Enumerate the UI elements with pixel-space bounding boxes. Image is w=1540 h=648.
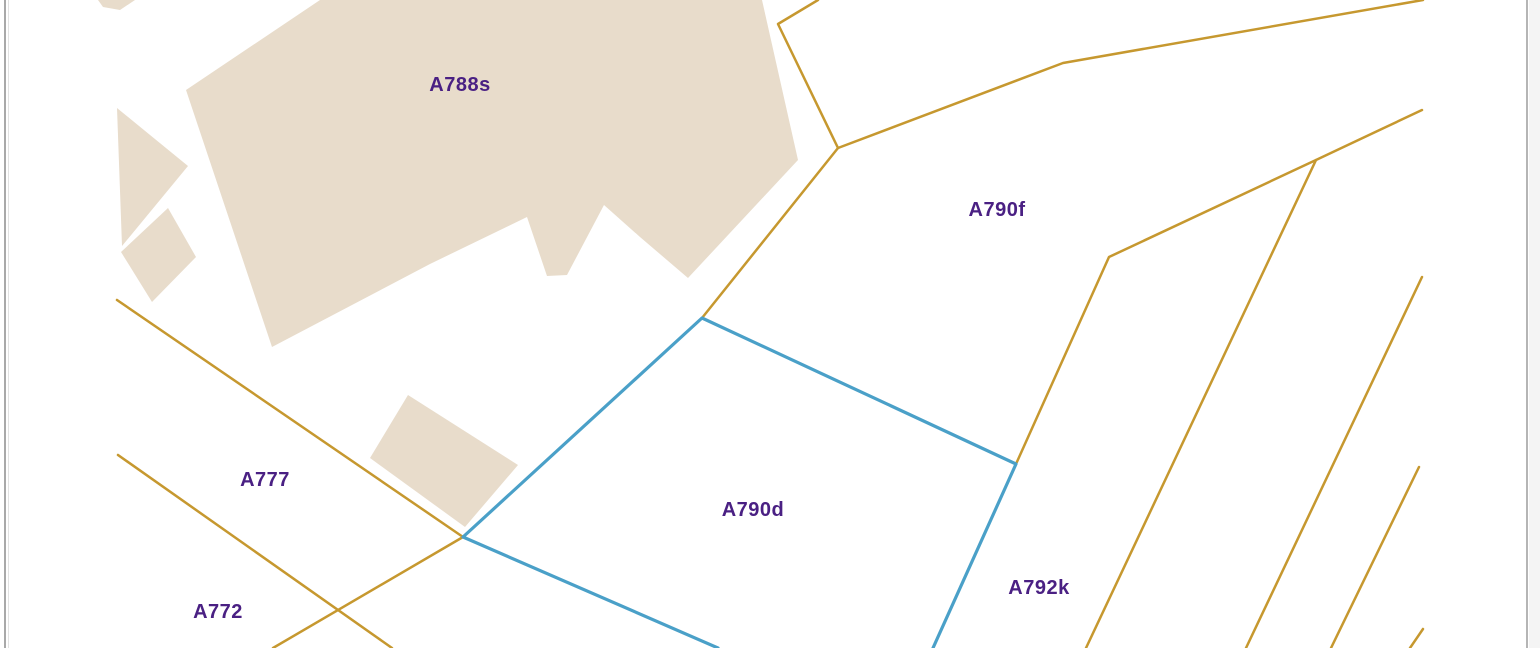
- parcel-label-a792k: A792k: [1008, 577, 1070, 599]
- frame-edge-line-0: [4, 0, 6, 648]
- frame-edge-line-2: [1526, 0, 1528, 648]
- frame-edge-line-3: [1529, 0, 1540, 648]
- map-canvas[interactable]: A788sA790fA790dA777A772A792k: [0, 0, 1540, 648]
- parcel-label-a790f: A790f: [969, 199, 1026, 221]
- frame-edge-line-1: [8, 0, 9, 648]
- cadastral-map-viewport: A788sA790fA790dA777A772A792k: [0, 0, 1540, 648]
- parcel-label-a777: A777: [240, 469, 290, 491]
- parcel-label-a790d: A790d: [722, 499, 785, 521]
- parcel-label-a788s: A788s: [429, 74, 490, 96]
- parcel-label-a772: A772: [193, 601, 243, 623]
